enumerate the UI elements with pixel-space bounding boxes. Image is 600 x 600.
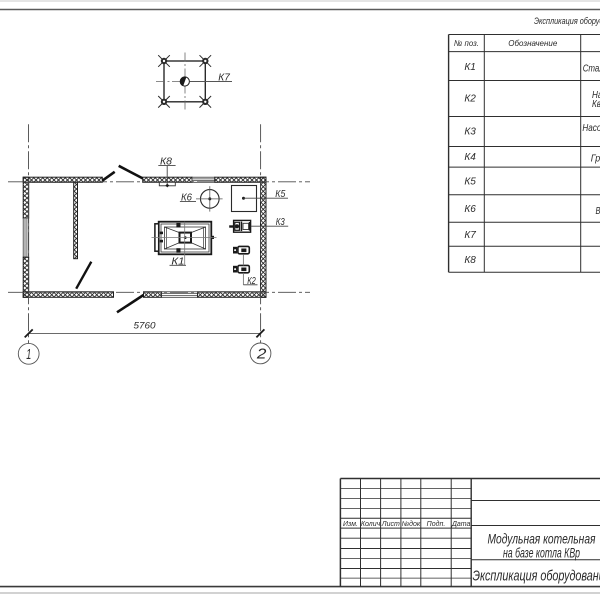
svg-text:Обозначение: Обозначение [508, 38, 557, 48]
svg-text:К8: К8 [160, 156, 172, 168]
svg-text:1: 1 [26, 346, 31, 363]
svg-text:Стальной котел: Стальной котел [583, 63, 600, 74]
svg-text:Экспликация оборудования: Экспликация оборудования [473, 569, 600, 585]
svg-text:К7: К7 [218, 71, 231, 83]
svg-text:К6: К6 [464, 203, 476, 215]
svg-text:К2: К2 [464, 93, 476, 105]
svg-text:5760: 5760 [134, 321, 156, 331]
svg-text:К3: К3 [276, 216, 285, 228]
svg-text:К1: К1 [171, 256, 184, 268]
svg-text:К2: К2 [247, 275, 256, 287]
svg-text:К1: К1 [464, 61, 476, 73]
svg-text:Вентилятор: Вентилятор [596, 206, 600, 217]
svg-text:на базе котла КВр: на базе котла КВр [503, 545, 580, 561]
svg-text:Экспликация оборудования: Экспликация оборудования [534, 16, 600, 27]
svg-text:Кв: Кв [592, 99, 600, 110]
svg-text:К5: К5 [464, 176, 476, 188]
svg-text:Лист: Лист [381, 521, 400, 528]
svg-text:К3: К3 [464, 126, 476, 138]
svg-text:Дата: Дата [451, 521, 471, 528]
svg-text:Изм.: Изм. [343, 521, 358, 528]
svg-text:Колич: Колич [361, 521, 381, 528]
svg-text:№ поз.: № поз. [454, 38, 479, 48]
svg-text:Насос: Насос [582, 123, 600, 134]
svg-text:2: 2 [256, 345, 267, 362]
svg-text:№док: №док [402, 520, 421, 528]
svg-text:К6: К6 [181, 192, 192, 204]
svg-text:К8: К8 [464, 254, 476, 266]
svg-text:К5: К5 [275, 188, 285, 200]
svg-text:Подп.: Подп. [427, 520, 446, 528]
svg-text:Грязевик: Грязевик [591, 154, 600, 165]
svg-text:К4: К4 [464, 151, 476, 163]
svg-text:К7: К7 [464, 229, 477, 241]
